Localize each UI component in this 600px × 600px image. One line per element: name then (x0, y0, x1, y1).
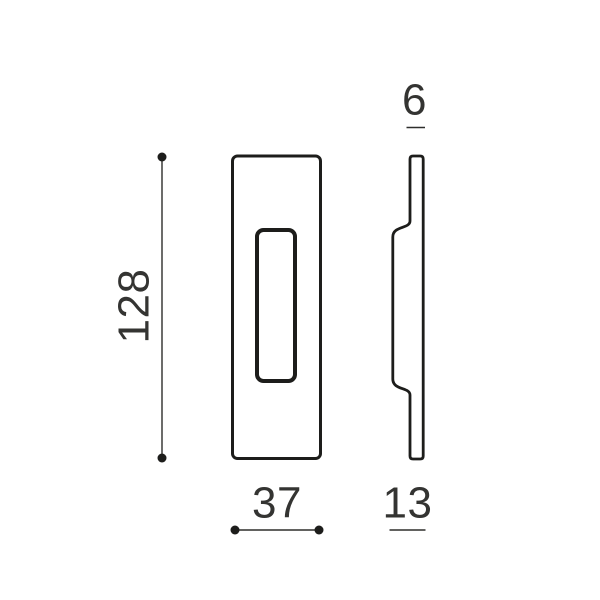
thickness-dimension-label: 6 (402, 76, 427, 125)
front-view (233, 156, 321, 459)
side-view (393, 156, 423, 459)
width-dimension: 37 (231, 479, 324, 535)
thickness-dimension: 6 (402, 76, 427, 128)
width-dimension-dot-right (315, 526, 324, 535)
height-dimension: 128 (110, 153, 167, 463)
height-dimension-dot-bottom (158, 454, 167, 463)
width-dimension-dot-left (231, 526, 240, 535)
front-view-plate-outline (233, 156, 321, 459)
side-view-profile (393, 156, 423, 459)
depth-dimension-label: 13 (383, 479, 433, 528)
height-dimension-dot-top (158, 153, 167, 162)
depth-dimension: 13 (383, 479, 433, 531)
width-dimension-label: 37 (252, 479, 302, 528)
technical-drawing: 128 37 6 13 (0, 0, 600, 600)
drawing-linework: 128 37 6 13 (0, 0, 600, 600)
front-view-recess-outline (257, 230, 295, 381)
height-dimension-label: 128 (110, 269, 159, 344)
